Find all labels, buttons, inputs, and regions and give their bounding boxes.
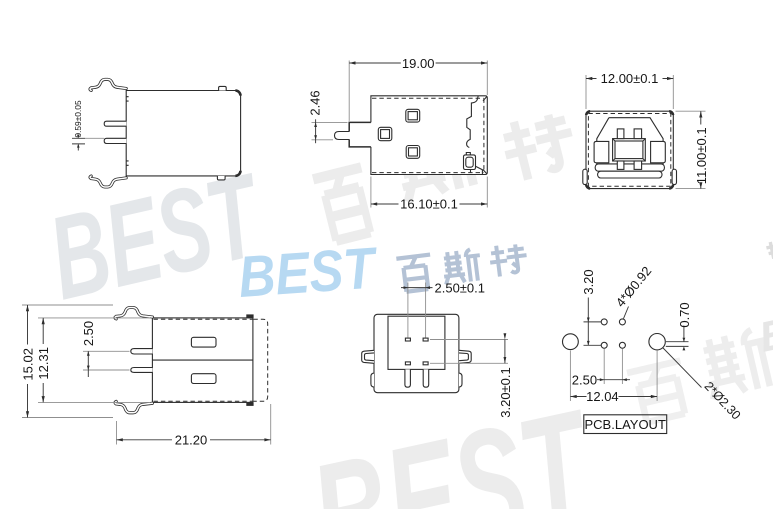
svg-text:21.20: 21.20 xyxy=(175,432,208,447)
svg-text:3.20: 3.20 xyxy=(581,269,596,294)
svg-text:12.31: 12.31 xyxy=(36,347,51,380)
svg-text:16.10±0.1: 16.10±0.1 xyxy=(400,197,458,212)
svg-text:2.46: 2.46 xyxy=(308,90,323,115)
svg-text:3.20±0.1: 3.20±0.1 xyxy=(498,367,513,418)
svg-text:11.00±0.1: 11.00±0.1 xyxy=(694,127,709,184)
svg-text:12.00±0.1: 12.00±0.1 xyxy=(601,71,659,86)
svg-text:PCB.LAYOUT: PCB.LAYOUT xyxy=(585,417,666,432)
svg-text:12.04: 12.04 xyxy=(586,389,619,404)
svg-text:0.59±0.05: 0.59±0.05 xyxy=(73,100,83,138)
svg-text:2.50: 2.50 xyxy=(572,372,597,387)
svg-text:2.50: 2.50 xyxy=(81,321,96,346)
svg-text:BEST: BEST xyxy=(236,235,380,310)
svg-text:2.50±0.1: 2.50±0.1 xyxy=(435,280,486,295)
svg-text:0.70: 0.70 xyxy=(677,302,692,327)
svg-text:19.00: 19.00 xyxy=(402,56,435,71)
svg-text:15.02: 15.02 xyxy=(21,348,36,381)
